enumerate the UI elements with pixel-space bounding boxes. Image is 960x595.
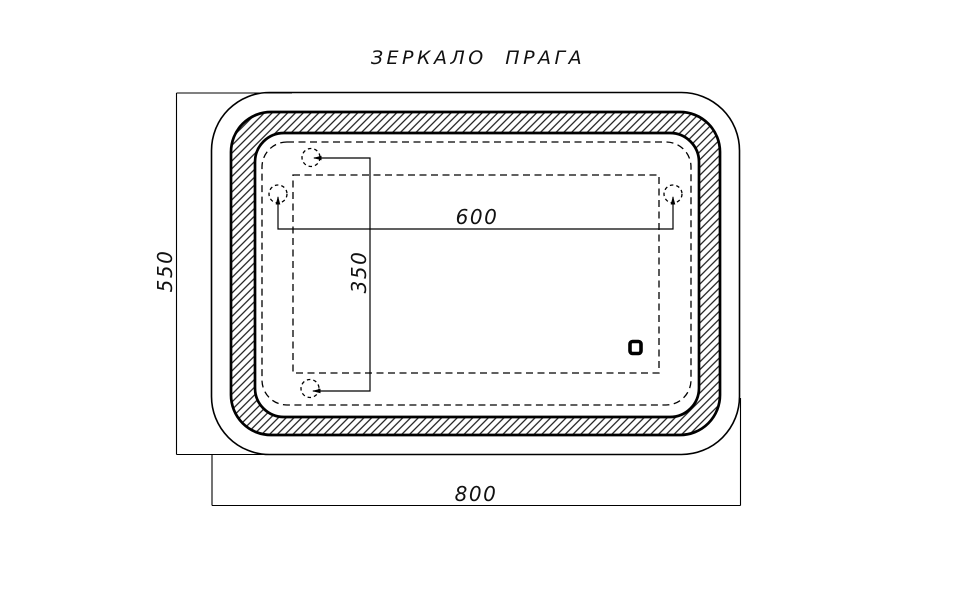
- led-band-outer-edge: [231, 112, 720, 435]
- dimension-label-550: 550: [153, 250, 177, 293]
- led-frosted-band-hatch: [231, 112, 720, 435]
- led-light-line-dashed: [262, 142, 691, 405]
- mounting-hook-icon: [301, 380, 319, 398]
- arrowhead-icon: [312, 389, 321, 394]
- mirror-outer-outline: [212, 93, 740, 455]
- arrowhead-icon: [276, 196, 281, 205]
- mirror-drawing-page: ЗЕРКАЛО ПРАГА 600 350: [0, 0, 960, 595]
- dimension-label-600: 600: [456, 205, 499, 229]
- arrowhead-icon: [313, 156, 322, 161]
- technical-drawing-canvas: ЗЕРКАЛО ПРАГА 600 350: [0, 0, 960, 595]
- overall-width-dimension: 800: [212, 398, 741, 506]
- touch-switch-icon: [630, 342, 641, 354]
- page-title: ЗЕРКАЛО ПРАГА: [371, 47, 585, 69]
- dimension-label-350: 350: [347, 251, 371, 294]
- dimension-label-800: 800: [455, 482, 498, 506]
- hook-span-horizontal-dimension: 600: [269, 185, 682, 229]
- arrowhead-icon: [671, 196, 676, 205]
- hook-span-vertical-dimension: 350: [301, 149, 371, 398]
